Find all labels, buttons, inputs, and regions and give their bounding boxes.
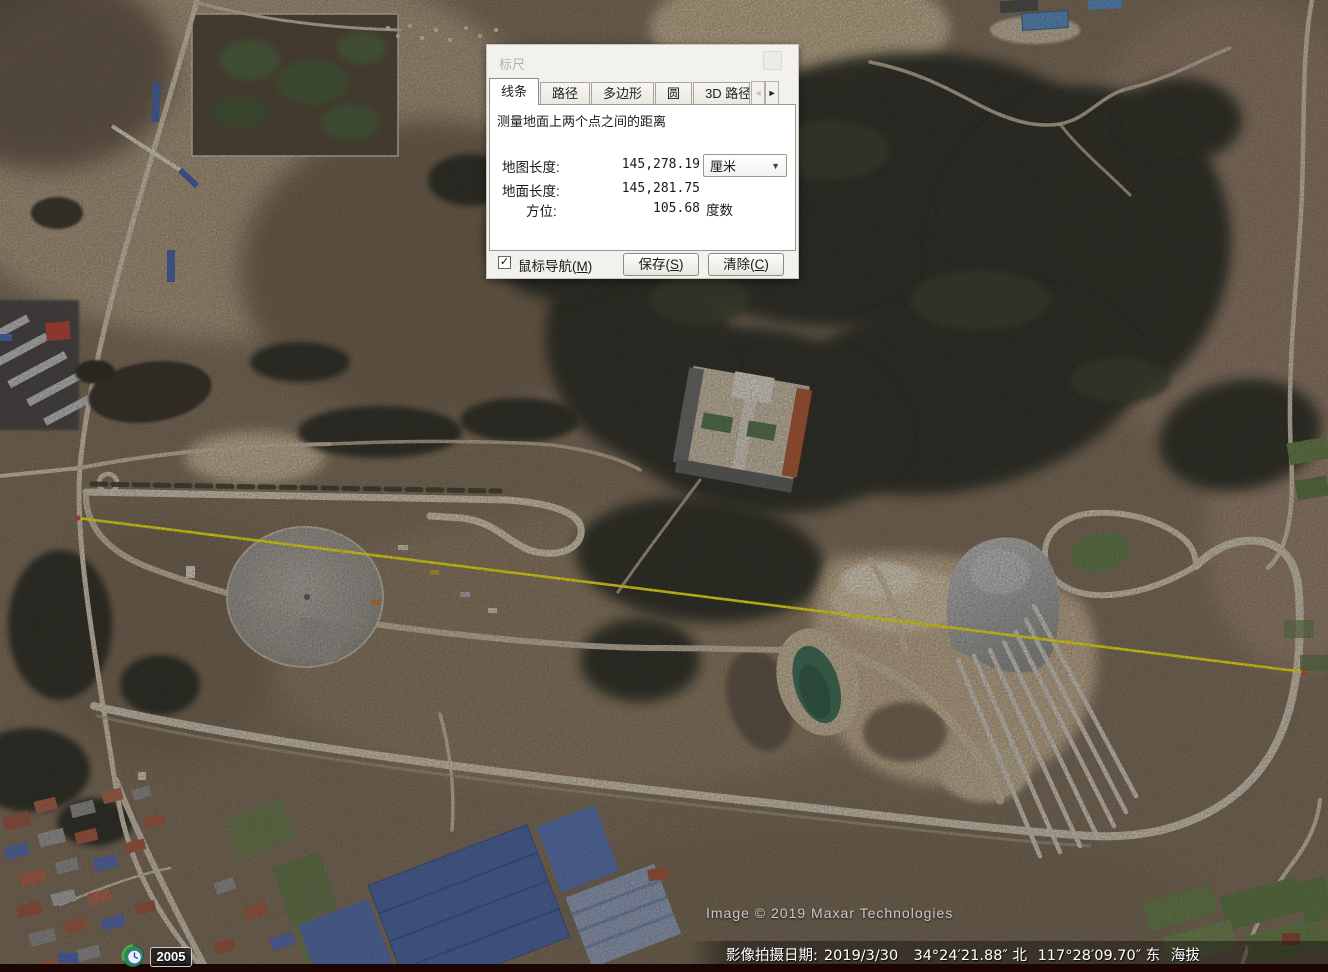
tab-3d-path[interactable]: 3D 路径 <box>693 82 750 105</box>
imagery-date-label: 影像拍摄日期: <box>726 948 818 964</box>
tab-path[interactable]: 路径 <box>540 82 590 105</box>
historical-imagery-clock-icon[interactable] <box>121 944 145 968</box>
imagery-date: 2019/3/30 <box>824 948 898 964</box>
ground-length-value: 145,281.75 <box>590 181 700 196</box>
dialog-footer: ✓ 鼠标导航(M) 保存(S) 清除(C) <box>487 249 798 278</box>
heading-label: 方位: <box>526 200 557 220</box>
map-length-label: 地图长度: <box>502 156 560 176</box>
heading-value: 105.68 <box>590 201 700 216</box>
ground-length-label: 地面长度: <box>502 180 560 200</box>
measure-description: 测量地面上两个点之间的距离 <box>497 111 666 130</box>
close-button[interactable] <box>763 51 782 70</box>
google-earth-window: Image © 2019 Maxar Technologies 影像拍摄日期:2… <box>0 0 1328 972</box>
longitude: 117°28′09.70″ 东 <box>1038 948 1161 964</box>
ruler-panel: 测量地面上两个点之间的距离 地图长度: 145,278.19 厘米 ▼ 地面长度… <box>489 104 796 251</box>
mouse-nav-checkbox[interactable]: ✓ <box>498 256 511 269</box>
unit-dropdown[interactable]: 厘米 ▼ <box>703 154 787 177</box>
tab-scroll-right-icon[interactable]: ► <box>765 81 779 105</box>
mouse-nav-label: 鼠标导航(M) <box>518 255 592 275</box>
heading-unit: 度数 <box>706 199 733 219</box>
copyright-watermark: Image © 2019 Maxar Technologies <box>706 905 953 921</box>
tab-circle[interactable]: 圆 <box>655 82 692 105</box>
dialog-title: 标尺 <box>499 54 525 73</box>
tab-line[interactable]: 线条 <box>489 78 539 105</box>
map-length-value: 145,278.19 <box>590 157 700 172</box>
clear-button[interactable]: 清除(C) <box>708 253 784 276</box>
status-bar: 影像拍摄日期:2019/3/30 34°24′21.88″ 北 117°28′0… <box>726 944 1326 965</box>
tab-polygon[interactable]: 多边形 <box>591 82 654 105</box>
ruler-tabbar: 线条 路径 多边形 圆 3D 路径 ◄ ► <box>489 78 796 105</box>
imagery-year-badge[interactable]: 2005 <box>150 947 192 967</box>
save-button[interactable]: 保存(S) <box>623 253 699 276</box>
chevron-down-icon: ▼ <box>771 161 780 171</box>
tab-scroll-left-icon[interactable]: ◄ <box>751 81 765 105</box>
unit-selected: 厘米 <box>710 156 736 175</box>
elevation-label: 海拔 <box>1171 948 1200 964</box>
latitude: 34°24′21.88″ 北 <box>913 948 1026 964</box>
bottom-strip <box>0 964 1328 972</box>
ruler-dialog: 标尺 线条 路径 多边形 圆 3D 路径 ◄ ► 测量地面上两个点之间的距离 地… <box>486 44 799 279</box>
